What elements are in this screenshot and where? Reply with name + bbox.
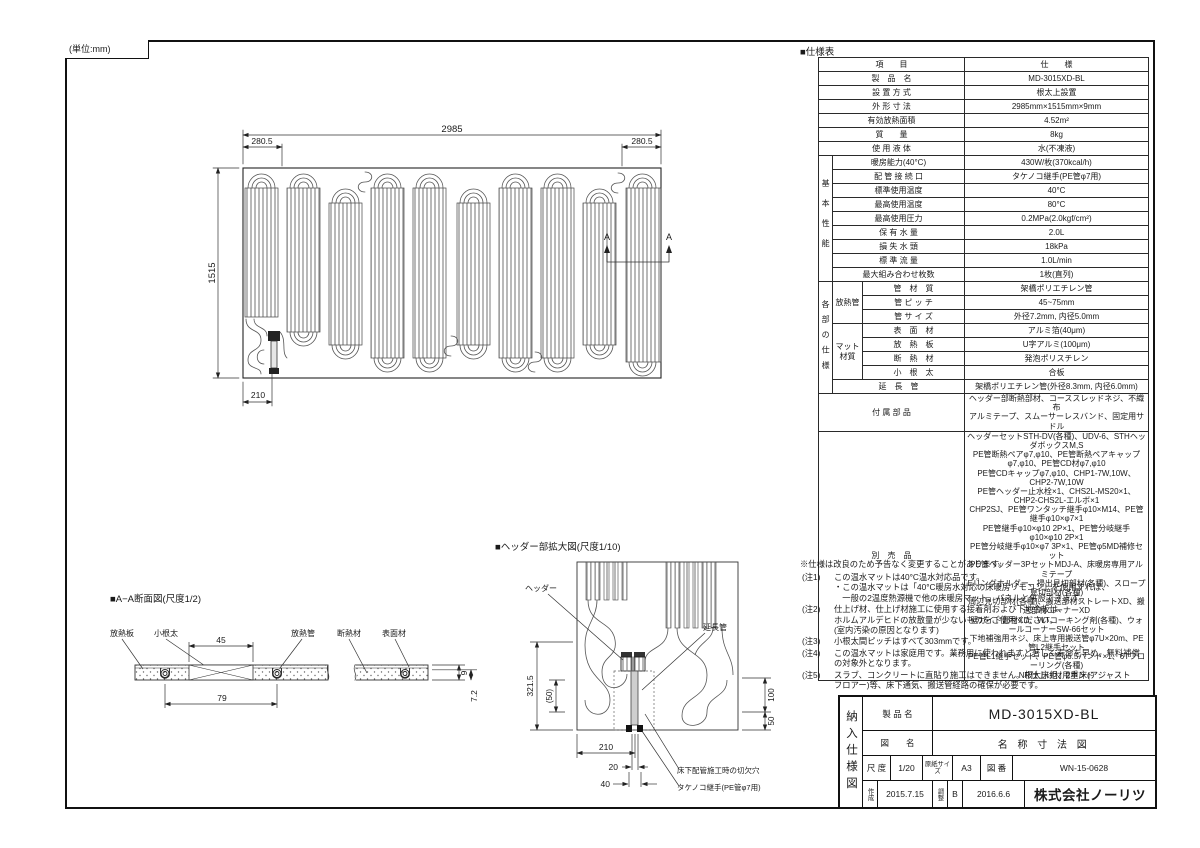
dim-end-right: 280.5 bbox=[631, 136, 653, 146]
note-item: (注2) 仕上げ材、仕上げ材施工に使用する接着剤および下地合板は、 ホルムアルデ… bbox=[802, 604, 1158, 635]
title-block-main: 製 品 名 MD-3015XD-BL 図 名 名 称 寸 法 図 尺 度 1/2… bbox=[863, 697, 1155, 807]
note-item: (注3) 小根太間ピッチはすべて303mmです。 bbox=[802, 636, 1158, 646]
drawing-name-label: 図 名 bbox=[863, 731, 933, 755]
spec-row-value: MD-3015XD-BL bbox=[965, 72, 1149, 86]
note-item: (注4) この温水マットは家庭用です。業務用に使われますと著しく寿命を早め、無料… bbox=[802, 648, 1158, 669]
spec-row-value: 1.0L/min bbox=[965, 254, 1149, 268]
spec-row-value: 発泡ポリスチレン bbox=[965, 352, 1149, 366]
section-title: ■A−A断面図(尺度1/2) bbox=[110, 593, 201, 605]
spec-table-title: ■仕様表 bbox=[800, 44, 834, 58]
note-text: この温水マットは家庭用です。業務用に使われますと著しく寿命を早め、無料補償 の対… bbox=[834, 648, 1140, 669]
spec-group-basic: 基本性能 bbox=[819, 156, 833, 282]
spec-row-label: 断 熱 材 bbox=[863, 352, 965, 366]
spec-row-value: U字アルミ(100μm) bbox=[965, 338, 1149, 352]
detail-title: ■ヘッダー部拡大図(尺度1/10) bbox=[495, 541, 621, 553]
plan-view: 2985 280.5 280.5 1515 210 A A bbox=[207, 124, 672, 406]
label-extension: 延長管 bbox=[703, 622, 727, 632]
spec-subgroup-pipe: 放熱管 bbox=[833, 282, 863, 324]
spec-row-value: タケノコ継手(PE管φ7用) bbox=[965, 170, 1149, 184]
spec-subgroup-mat: マット材質 bbox=[833, 324, 863, 380]
created-date: 2015.7.15 bbox=[878, 781, 933, 807]
label-notch: 床下配管施工時の切欠穴 bbox=[677, 765, 760, 775]
spec-row-label: 外 形 寸 法 bbox=[819, 100, 965, 114]
spec-row-label: 配 管 接 続 口 bbox=[833, 170, 965, 184]
note-text: スラブ、コンクリートに直貼り施工はできません。根太床組、2重床(アジャスト フロ… bbox=[834, 670, 1131, 691]
created-label: 作成 bbox=[863, 781, 878, 807]
spec-row-value: 2.0L bbox=[965, 226, 1149, 240]
header-detail: ■ヘッダー部拡大図(尺度1/10) bbox=[495, 541, 776, 792]
spec-row-value: 合板 bbox=[965, 366, 1149, 380]
note-text: この温水マットは40°C温水対応品です。 ・この温水マットは「40°C暖房水対応… bbox=[834, 572, 1110, 603]
spec-row-label: 暖房能力(40°C) bbox=[833, 156, 965, 170]
detail-fitting-left bbox=[626, 725, 632, 732]
dim-45: 45 bbox=[216, 635, 226, 645]
paper-size-label: 原紙サイズ bbox=[923, 756, 953, 780]
line-drawings: 2985 280.5 280.5 1515 210 A A ■A−A断面図(尺度… bbox=[65, 40, 815, 810]
spec-row-label: 設 置 方 式 bbox=[819, 86, 965, 100]
scale-label: 尺 度 bbox=[863, 756, 891, 780]
spec-row-label: 管 サ イ ズ bbox=[863, 310, 965, 324]
spec-row-label: 管 材 質 bbox=[863, 282, 965, 296]
spec-row-value: 80°C bbox=[965, 198, 1149, 212]
spec-row-value: 8kg bbox=[965, 128, 1149, 142]
spec-row-label: 保 有 水 量 bbox=[833, 226, 965, 240]
company-logo: 株式会社ノーリツ bbox=[1025, 781, 1155, 807]
drawing-name-value: 名 称 寸 法 図 bbox=[933, 731, 1155, 755]
spec-row-label: 質 量 bbox=[819, 128, 965, 142]
spec-col-item: 項 目 bbox=[819, 58, 965, 72]
spec-row-value: 0.2MPa(2.0kgf/cm²) bbox=[965, 212, 1149, 226]
spec-row-label: 標 準 流 量 bbox=[833, 254, 965, 268]
dim-overall-height: 1515 bbox=[207, 262, 218, 283]
label-heat-plate: 放熱板 bbox=[110, 628, 134, 638]
note-text: 仕上げ材、仕上げ材施工に使用する接着剤および下地合板は、 ホルムアルデヒドの放散… bbox=[834, 604, 1066, 635]
note-number: (注3) bbox=[802, 636, 834, 646]
label-header: ヘッダー bbox=[525, 583, 557, 593]
dim-50: 50 bbox=[767, 716, 776, 725]
spec-row-label: 製 品 名 bbox=[819, 72, 965, 86]
title-block-row-scale: 尺 度 1/20 原紙サイズ A3 図 番 WN-15-0628 bbox=[863, 756, 1155, 781]
label-small-joist: 小根太 bbox=[154, 628, 178, 638]
spec-group-parts: 各部の仕様 bbox=[819, 282, 833, 394]
title-block-row-dates: 作成 2015.7.15 調整 B 2016.6.6 株式会社ノーリツ bbox=[863, 781, 1155, 807]
note-number: (注5) bbox=[802, 670, 834, 691]
note-item: (注5) スラブ、コンクリートに直貼り施工はできません。根太床組、2重床(アジャ… bbox=[802, 670, 1158, 691]
title-block-row-product: 製 品 名 MD-3015XD-BL bbox=[863, 697, 1155, 731]
label-fitting: タケノコ継手(PE管φ7用) bbox=[677, 782, 761, 792]
dim-40: 40 bbox=[601, 779, 611, 789]
spec-row-label: 最大組み合わせ枚数 bbox=[833, 268, 965, 282]
spec-row-value: 架橋ポリエチレン管 bbox=[965, 282, 1149, 296]
spec-row-value: 架橋ポリエチレン管(外径8.3mm, 内径6.0mm) bbox=[965, 380, 1149, 394]
drawing-number-value: WN-15-0628 bbox=[1013, 756, 1155, 780]
spec-row-value: 水(不凍液) bbox=[965, 142, 1149, 156]
spec-row-value: 18kPa bbox=[965, 240, 1149, 254]
product-name-value: MD-3015XD-BL bbox=[933, 697, 1155, 730]
note-number: (注2) bbox=[802, 604, 834, 635]
spec-row-label: 延 長 管 bbox=[833, 380, 965, 394]
title-block-side-label: 納入仕様図 bbox=[840, 697, 863, 807]
dim-100: 100 bbox=[767, 688, 776, 702]
spec-disclaimer: ※仕様は改良のため予告なく変更することがあります。 bbox=[800, 558, 1007, 570]
dim-9: 9 bbox=[459, 670, 469, 675]
spec-accessories-value: ヘッダー部断熱部材、コーススレッドネジ、不織布 アルミテープ、スムーサーレスバン… bbox=[965, 394, 1149, 432]
dim-20: 20 bbox=[609, 762, 619, 772]
spec-row-value: 4.52m² bbox=[965, 114, 1149, 128]
spec-row-value: 外径7.2mm, 内径5.0mm bbox=[965, 310, 1149, 324]
spec-row-value: 2985mm×1515mm×9mm bbox=[965, 100, 1149, 114]
marker-a-left: A bbox=[604, 232, 610, 242]
label-insulation: 断熱材 bbox=[337, 628, 361, 638]
label-heat-pipe: 放熱管 bbox=[291, 628, 315, 638]
product-name-label: 製 品 名 bbox=[863, 697, 933, 730]
spec-col-spec: 仕 様 bbox=[965, 58, 1149, 72]
dim-7-2: 7.2 bbox=[469, 690, 479, 702]
spec-row-label: 小 根 太 bbox=[863, 366, 965, 380]
spec-row-value: アルミ箔(40μm) bbox=[965, 324, 1149, 338]
scale-value: 1/20 bbox=[891, 756, 923, 780]
detail-extension-pipe bbox=[631, 671, 638, 725]
section-aa: ■A−A断面図(尺度1/2) 放熱板 小根太 放熱管 断熱材 表面材 bbox=[110, 593, 479, 708]
spec-row-label: 表 面 材 bbox=[863, 324, 965, 338]
spec-row-label: 有効放熱面積 bbox=[819, 114, 965, 128]
dim-overall-width: 2985 bbox=[441, 124, 462, 135]
note-number: (注1) bbox=[802, 572, 834, 603]
adjusted-label: 調整 bbox=[933, 781, 948, 807]
drawing-sheet: (単位:mm) bbox=[0, 0, 1200, 848]
spec-row-label: 管 ピ ッ チ bbox=[863, 296, 965, 310]
spec-row-value: 40°C bbox=[965, 184, 1149, 198]
adjusted-date: 2016.6.6 bbox=[963, 781, 1025, 807]
dim-50-paren: (50) bbox=[545, 689, 554, 704]
paper-size-value: A3 bbox=[953, 756, 981, 780]
marker-a-right: A bbox=[666, 232, 672, 242]
note-item: (注1) この温水マットは40°C温水対応品です。 ・この温水マットは「40°C… bbox=[802, 572, 1158, 603]
dim-header-offset: 210 bbox=[251, 390, 265, 400]
revision-value: B bbox=[948, 781, 963, 807]
drawing-number-label: 図 番 bbox=[981, 756, 1013, 780]
spec-row-label: 標準使用温度 bbox=[833, 184, 965, 198]
spec-row-label: 使 用 液 体 bbox=[819, 142, 965, 156]
dim-210: 210 bbox=[599, 742, 613, 752]
dim-79: 79 bbox=[217, 693, 227, 703]
title-block: 納入仕様図 製 品 名 MD-3015XD-BL 図 名 名 称 寸 法 図 尺… bbox=[838, 695, 1157, 809]
dim-321-5: 321.5 bbox=[525, 675, 535, 697]
spec-row-label: 最高使用温度 bbox=[833, 198, 965, 212]
spec-row-value: 根太上設置 bbox=[965, 86, 1149, 100]
spec-row-value: 1枚(直列) bbox=[965, 268, 1149, 282]
title-block-row-drawing: 図 名 名 称 寸 法 図 bbox=[863, 731, 1155, 756]
spec-row-value: 45~75mm bbox=[965, 296, 1149, 310]
notes-list: (注1) この温水マットは40°C温水対応品です。 ・この温水マットは「40°C… bbox=[802, 572, 1158, 691]
note-text: 小根太間ピッチはすべて303mmです。 bbox=[834, 636, 976, 646]
spec-row-label: 放 熱 板 bbox=[863, 338, 965, 352]
dim-end-left: 280.5 bbox=[251, 136, 273, 146]
spec-row-label: 損 失 水 頭 bbox=[833, 240, 965, 254]
spec-row-label: 最高使用圧力 bbox=[833, 212, 965, 226]
note-number: (注4) bbox=[802, 648, 834, 669]
spec-row-value: 430W/枚(370kcal/h) bbox=[965, 156, 1149, 170]
label-surface: 表面材 bbox=[382, 628, 406, 638]
spec-accessories-label: 付 属 部 品 bbox=[819, 394, 965, 432]
